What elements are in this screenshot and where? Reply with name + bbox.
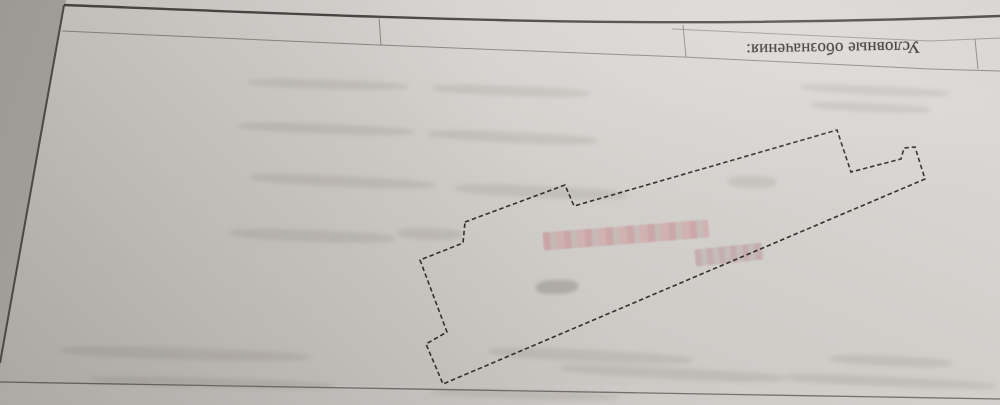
sheet-border-left [0,5,64,363]
sheet-border-top [64,5,1000,22]
photographed-cadastral-document: Условные обозначения: [0,0,1000,405]
legend-header-text: Условные обозначения: [727,34,939,62]
column-divider-left [379,17,381,45]
plan-linework [0,0,1000,405]
column-divider-right [975,39,978,69]
adjacent-section-strip [0,385,1000,405]
parcel-boundary-polygon [420,130,925,384]
